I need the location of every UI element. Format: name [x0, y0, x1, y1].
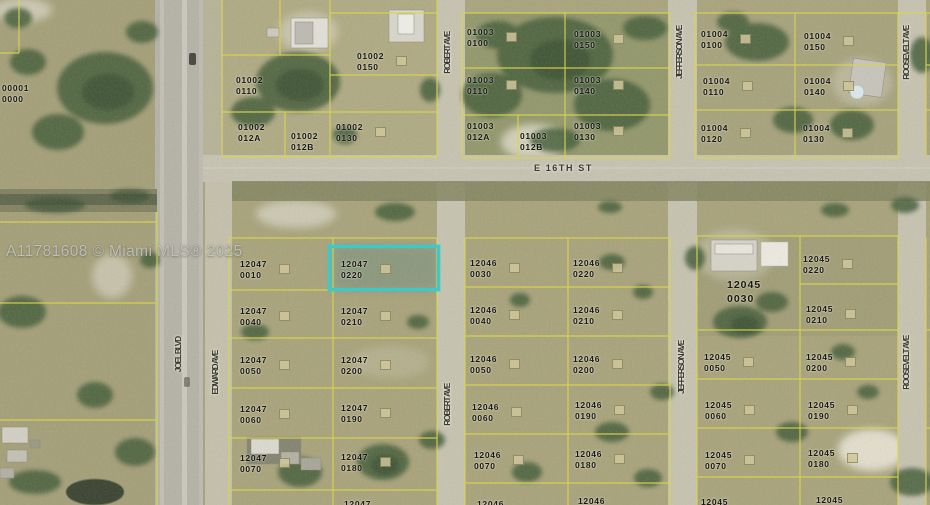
parcel-block-number: 12045	[808, 448, 835, 459]
parcel-lot-number: 0100	[467, 38, 494, 49]
parcel-lot-number: 0150	[357, 62, 384, 73]
mls-aerial-parcel-map[interactable]: 00001000001002015001002011001002012A0100…	[0, 0, 930, 505]
lot-marker-icon	[744, 455, 755, 465]
parcel-label: 010040150	[804, 31, 831, 53]
parcel-block-number: 12047	[240, 355, 267, 366]
parcel-block-number: 01003	[467, 27, 494, 38]
parcel-block-number: 01004	[803, 123, 830, 134]
parcel-label: 120470010	[240, 259, 267, 281]
parcel-lot-number: 0130	[574, 132, 601, 143]
lot-marker-icon	[843, 81, 854, 91]
parcel-lot-number: 0130	[803, 134, 830, 145]
parcel-block-number: 01002	[357, 51, 384, 62]
parcel-block-number: 01004	[703, 76, 730, 87]
parcel-label: 120470040	[240, 306, 267, 328]
lot-marker-icon	[740, 34, 751, 44]
parcel-lot-number: 0180	[808, 459, 835, 470]
parcel-block-number: 12047	[240, 259, 267, 270]
parcel-block-number: 12047	[341, 355, 368, 366]
parcel-block-number: 12047	[341, 306, 368, 317]
parcel-block-number: 01002	[236, 75, 263, 86]
lot-marker-icon	[614, 454, 625, 464]
parcel-block-number: 01003	[574, 75, 601, 86]
parcel-block-number: 00001	[2, 83, 29, 94]
lot-marker-icon	[843, 36, 854, 46]
street-label-joel-blvd: JOEL BLVD	[173, 337, 183, 372]
parcel-block-number: 12046	[573, 354, 600, 365]
parcel-block-number: 12047	[240, 306, 267, 317]
lot-marker-icon	[279, 360, 290, 370]
parcel-label: 120470180	[341, 452, 368, 474]
parcel-label: 120460070	[474, 450, 501, 472]
lot-marker-icon	[744, 405, 755, 415]
parcel-label: 120450200	[806, 352, 833, 374]
parcel-label: 120460210	[573, 305, 600, 327]
parcel-block-number: 12045	[701, 497, 728, 505]
parcel-label: 120450210	[806, 304, 833, 326]
parcel-block-number: 01003	[467, 75, 494, 86]
lot-marker-icon	[509, 359, 520, 369]
parcel-block-number: 12046	[477, 499, 504, 505]
street-label-roosevelt-ave: ROOSEVELT AVE	[901, 336, 911, 390]
parcel-block-number: 12045	[816, 495, 843, 505]
parcel-lot-number: 0140	[804, 87, 831, 98]
parcel-block-number: 12045	[704, 352, 731, 363]
parcel-label-highlighted: 120470220	[341, 259, 368, 281]
parcel-lot-number: 0190	[341, 414, 368, 425]
parcel-lot-number: 0050	[470, 365, 497, 376]
parcel-label: 120470210	[341, 306, 368, 328]
parcel-label: 12046	[477, 499, 504, 505]
mls-watermark: A11781608 © Miami MLS® 2025	[6, 243, 243, 261]
parcel-label: 12046	[578, 496, 605, 505]
parcel-label: 120460030	[470, 258, 497, 280]
parcel-block-number: 12046	[470, 258, 497, 269]
parcel-label: 010030130	[574, 121, 601, 143]
parcel-lot-number: 012B	[520, 142, 547, 153]
parcel-label: 120460180	[575, 449, 602, 471]
parcel-label: 000010000	[2, 83, 29, 105]
lot-marker-icon	[375, 127, 386, 137]
parcel-label: 010030150	[574, 29, 601, 51]
parcel-lot-number: 0190	[808, 411, 835, 422]
parcel-lot-number: 0110	[703, 87, 730, 98]
lot-marker-icon	[513, 455, 524, 465]
parcel-block-number: 12047	[240, 453, 267, 464]
parcel-label: 120470070	[240, 453, 267, 475]
parcel-block-number: 12047	[341, 452, 368, 463]
street-label-jefferson-ave: JEFFERSON AVE	[676, 341, 686, 394]
parcel-block-number: 01003	[467, 121, 494, 132]
parcel-lot-number: 0210	[573, 316, 600, 327]
lot-marker-icon	[506, 80, 517, 90]
parcel-label: 010040100	[701, 29, 728, 51]
parcel-block-number: 01002	[291, 131, 318, 142]
parcel-lot-number: 0050	[704, 363, 731, 374]
parcel-label: 12045	[701, 497, 728, 505]
lot-marker-icon	[612, 359, 623, 369]
parcel-block-number: 12046	[575, 449, 602, 460]
lot-marker-icon	[842, 259, 853, 269]
lot-marker-icon	[511, 407, 522, 417]
parcel-lot-number: 0150	[804, 42, 831, 53]
parcel-lot-number: 0070	[240, 464, 267, 475]
parcel-block-number: 01002	[336, 122, 363, 133]
parcel-lot-number: 0110	[467, 86, 494, 97]
parcel-lot-number: 0030	[727, 293, 761, 307]
parcel-lot-number: 0070	[474, 461, 501, 472]
lot-marker-icon	[613, 126, 624, 136]
lot-marker-icon	[842, 128, 853, 138]
parcel-block-number: 12045	[806, 352, 833, 363]
parcel-block-number: 12046	[573, 258, 600, 269]
street-label-jefferson-ave: JEFFERSON AVE	[674, 26, 684, 79]
lot-marker-icon	[847, 405, 858, 415]
parcel-label: 120460040	[470, 305, 497, 327]
parcel-lot-number: 0030	[470, 269, 497, 280]
parcel-lot-number: 0190	[575, 411, 602, 422]
parcel-lot-number: 0120	[701, 134, 728, 145]
lot-marker-icon	[279, 409, 290, 419]
parcel-block-number: 01004	[701, 123, 728, 134]
parcel-block-number: 12045	[727, 279, 761, 293]
street-label-robert-ave: ROBERT AVE	[442, 384, 452, 426]
parcel-lot-number: 0180	[575, 460, 602, 471]
parcel-lot-number: 0200	[573, 365, 600, 376]
lot-marker-icon	[509, 263, 520, 273]
parcel-label: 010040120	[701, 123, 728, 145]
lot-marker-icon	[279, 311, 290, 321]
parcel-lot-number: 0210	[341, 317, 368, 328]
parcel-label: 120460060	[472, 402, 499, 424]
lot-marker-icon	[380, 264, 391, 274]
lot-marker-icon	[613, 80, 624, 90]
parcel-label: 12045	[816, 495, 843, 505]
parcel-lot-number: 0060	[472, 413, 499, 424]
parcel-block-number: 12045	[806, 304, 833, 315]
parcel-label: 120450180	[808, 448, 835, 470]
parcel-block-number: 01004	[804, 76, 831, 87]
parcel-lot-number: 0180	[341, 463, 368, 474]
lot-marker-icon	[396, 56, 407, 66]
lot-marker-icon	[847, 453, 858, 463]
parcel-label: 010040140	[804, 76, 831, 98]
parcel-label: 120450050	[704, 352, 731, 374]
parcel-label: 120450070	[705, 450, 732, 472]
parcel-lot-number: 0200	[806, 363, 833, 374]
parcel-block-number: 12046	[470, 354, 497, 365]
parcel-label: 010030110	[467, 75, 494, 97]
parcel-lot-number: 0140	[574, 86, 601, 97]
parcel-label: 01003012A	[467, 121, 494, 143]
parcel-block-number: 12045	[705, 400, 732, 411]
lot-marker-icon	[380, 457, 391, 467]
parcel-label: 010020110	[236, 75, 263, 97]
parcel-label: 010030140	[574, 75, 601, 97]
street-label-robert-ave: ROBERT AVE	[442, 32, 452, 74]
parcel-label: 120460200	[573, 354, 600, 376]
parcel-label: 01003012B	[520, 131, 547, 153]
lot-marker-icon	[614, 405, 625, 415]
lot-marker-icon	[506, 32, 517, 42]
parcel-block-number: 12047	[341, 403, 368, 414]
parcel-lot-number: 0210	[806, 315, 833, 326]
parcel-lot-number: 0220	[803, 265, 830, 276]
lot-marker-icon	[612, 310, 623, 320]
parcel-block-number: 12046	[573, 305, 600, 316]
lot-marker-icon	[845, 309, 856, 319]
parcel-label: 120470060	[240, 404, 267, 426]
street-label-roosevelt-ave: ROOSEVELT AVE	[901, 26, 911, 80]
parcel-lot-number: 0060	[240, 415, 267, 426]
parcel-label: 120450030	[727, 279, 761, 306]
lot-marker-icon	[509, 310, 520, 320]
parcel-block-number: 12047	[344, 499, 371, 505]
parcel-label: 120460050	[470, 354, 497, 376]
lot-marker-icon	[613, 34, 624, 44]
parcel-lot-number: 0000	[2, 94, 29, 105]
parcel-label: 120460220	[573, 258, 600, 280]
parcel-block-number: 12046	[575, 400, 602, 411]
parcel-label: 120470190	[341, 403, 368, 425]
parcel-label: 120450220	[803, 254, 830, 276]
lot-marker-icon	[743, 357, 754, 367]
parcel-label: 01002012A	[238, 122, 265, 144]
parcel-block-number: 12045	[808, 400, 835, 411]
street-label-edward-ave: EDWARD AVE	[210, 351, 220, 395]
lot-marker-icon	[742, 81, 753, 91]
parcel-lot-number: 0200	[341, 366, 368, 377]
parcel-label: 01002012B	[291, 131, 318, 153]
parcel-block-number: 12046	[472, 402, 499, 413]
lot-marker-icon	[612, 263, 623, 273]
parcel-lot-number: 0100	[701, 40, 728, 51]
parcel-lot-number: 0040	[470, 316, 497, 327]
parcel-label: 010020150	[357, 51, 384, 73]
parcel-label: 120470050	[240, 355, 267, 377]
parcel-label: 010040110	[703, 76, 730, 98]
parcel-label: 120450060	[705, 400, 732, 422]
street-label-e-16th-st: E 16TH ST	[534, 163, 593, 173]
parcel-label: 010020130	[336, 122, 363, 144]
lot-marker-icon	[845, 357, 856, 367]
lot-marker-icon	[380, 311, 391, 321]
parcel-lot-number: 0050	[240, 366, 267, 377]
parcel-lot-number: 0220	[341, 270, 368, 281]
parcel-block-number: 12046	[578, 496, 605, 505]
parcel-block-number: 01003	[574, 121, 601, 132]
lot-marker-icon	[279, 458, 290, 468]
parcel-lot-number: 0130	[336, 133, 363, 144]
parcel-block-number: 12046	[474, 450, 501, 461]
parcel-block-number: 12046	[470, 305, 497, 316]
parcel-lot-number: 0060	[705, 411, 732, 422]
parcel-lot-number: 0040	[240, 317, 267, 328]
parcel-label: 120460190	[575, 400, 602, 422]
parcel-label: 010040130	[803, 123, 830, 145]
parcel-label: 120450190	[808, 400, 835, 422]
parcel-block-number: 12047	[341, 259, 368, 270]
parcel-lot-number: 0110	[236, 86, 263, 97]
parcel-lot-number: 012B	[291, 142, 318, 153]
parcel-label: 010030100	[467, 27, 494, 49]
parcel-block-number: 01002	[238, 122, 265, 133]
parcel-lot-number: 012A	[238, 133, 265, 144]
parcel-lot-number: 0070	[705, 461, 732, 472]
parcel-block-number: 01004	[804, 31, 831, 42]
parcel-lot-number: 0150	[574, 40, 601, 51]
parcel-label: 12047	[344, 499, 371, 505]
parcel-block-number: 12045	[705, 450, 732, 461]
lot-marker-icon	[380, 408, 391, 418]
parcel-lot-number: 012A	[467, 132, 494, 143]
parcel-block-number: 01004	[701, 29, 728, 40]
parcel-block-number: 01003	[520, 131, 547, 142]
lot-marker-icon	[380, 360, 391, 370]
lot-marker-icon	[740, 128, 751, 138]
parcel-block-number: 12045	[803, 254, 830, 265]
parcel-lot-number: 0220	[573, 269, 600, 280]
parcel-block-number: 01003	[574, 29, 601, 40]
parcel-label: 120470200	[341, 355, 368, 377]
parcel-lot-number: 0010	[240, 270, 267, 281]
lot-marker-icon	[279, 264, 290, 274]
parcel-block-number: 12047	[240, 404, 267, 415]
